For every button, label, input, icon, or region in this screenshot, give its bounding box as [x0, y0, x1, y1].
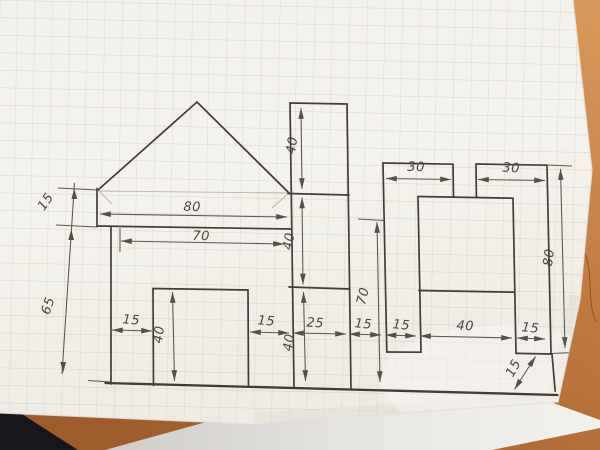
- dim-label-tower-top-height: 40: [284, 135, 302, 155]
- dim-label-tower-bottom-height: 40: [281, 333, 298, 352]
- dim-label-house-body-width: 70: [192, 229, 210, 245]
- gap-left-edge: [453, 164, 454, 197]
- dim-label-door-left-offset: 15: [122, 312, 141, 328]
- dim-label-door-height: 40: [151, 325, 168, 344]
- dim-label-right-left-wall: 15: [392, 317, 411, 333]
- step-right: [516, 353, 552, 354]
- dim-label-top-left-width: 30: [407, 160, 425, 176]
- dim-label-tower-gap: 15: [354, 316, 373, 332]
- dim-label-tower-width: 25: [306, 316, 324, 332]
- dim-label-top-right-width: 30: [502, 161, 520, 177]
- dim-label-door-right-offset: 15: [257, 313, 276, 329]
- dim-label-opening-width: 40: [456, 319, 474, 335]
- dim-label-tower-mid-height: 40: [281, 231, 299, 251]
- dim-label-right-height: 80: [541, 248, 558, 267]
- dim-label-house-roof-width: 80: [183, 200, 201, 216]
- graph-paper: [0, 0, 600, 450]
- photo-of-technical-drawing: 80 70 15 65 15 40 15 25 15 15 40 15 40 4…: [0, 0, 600, 450]
- tower-top: [290, 103, 347, 104]
- scene-canvas: 80 70 15 65 15 40 15 25 15 15 40 15 40 4…: [0, 0, 600, 450]
- dim-label-right-right-wall: 15: [521, 320, 540, 337]
